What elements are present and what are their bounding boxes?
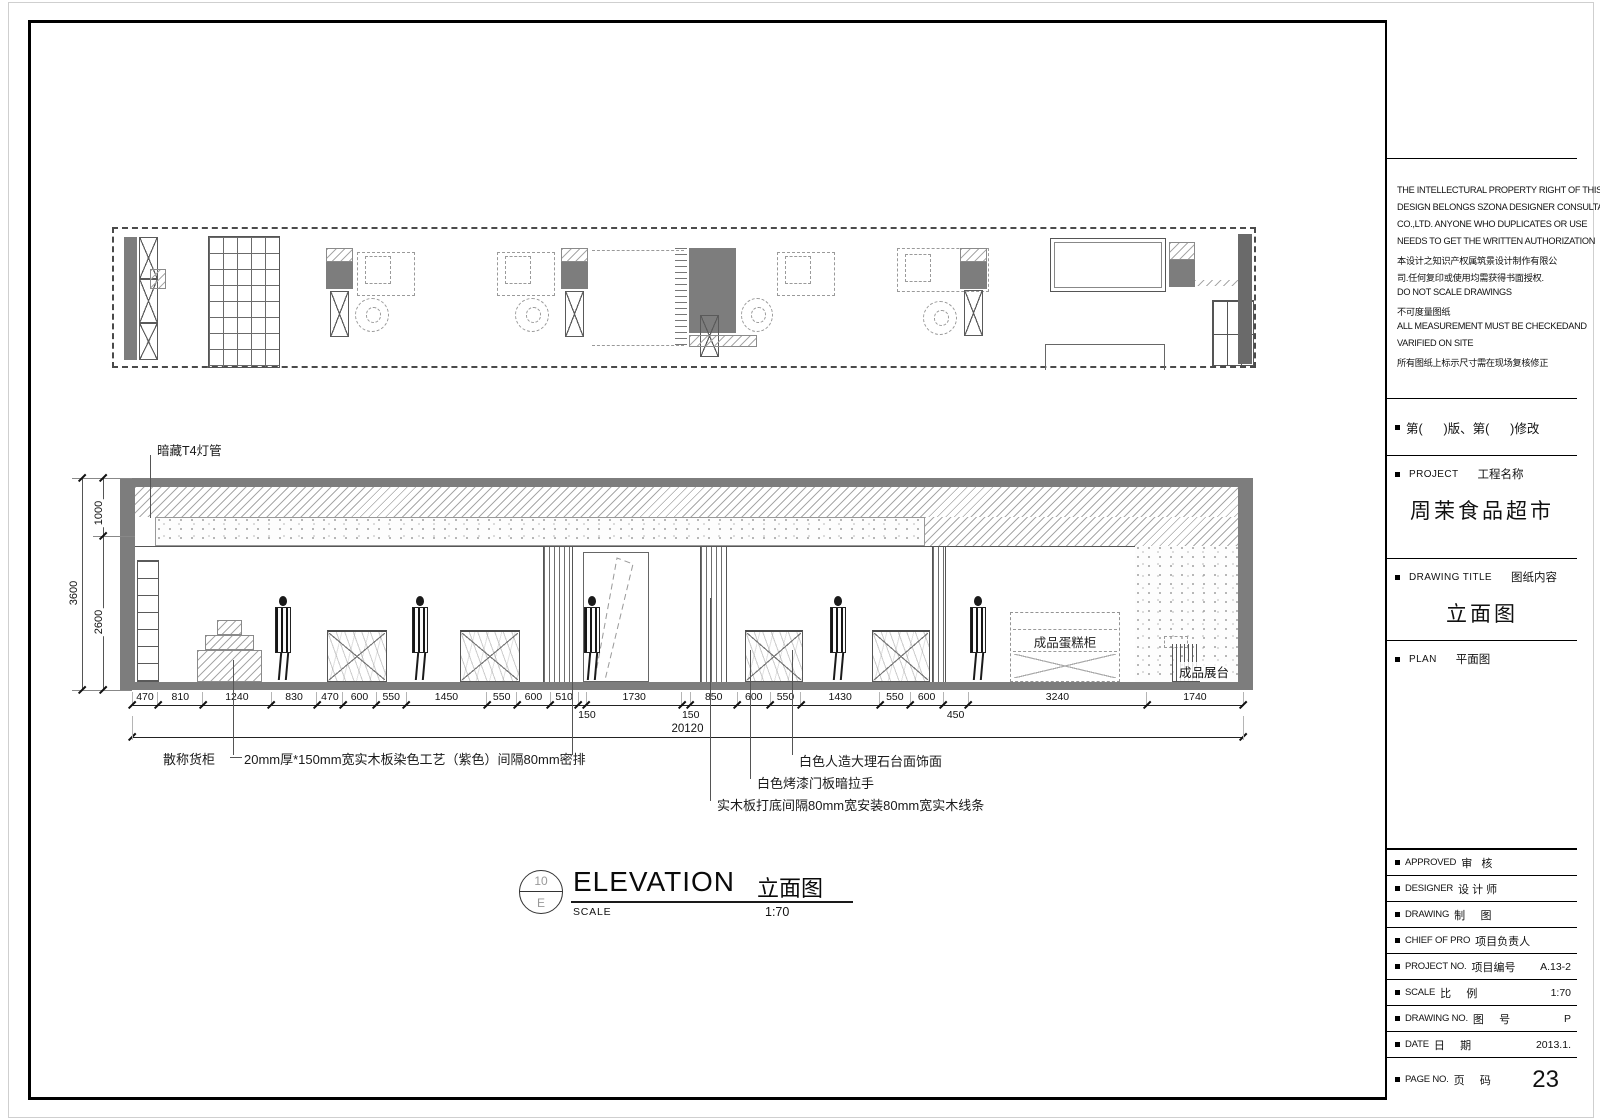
mannequin-legs [972, 653, 983, 680]
bullet-icon [1395, 425, 1400, 430]
titleblock-empty [1387, 20, 1577, 158]
bulkhead-stipple-band [155, 517, 925, 546]
legal-line: VARIFIED ON SITE [1397, 338, 1573, 355]
drawing-title-label-zh: 图纸内容 [1511, 569, 1557, 585]
row-label-zh: 图 号 [1473, 1011, 1559, 1027]
titleblock-row: PAGE NO.页 码23 [1387, 1057, 1577, 1101]
mannequin-body [412, 607, 428, 653]
plan-bottom-counter [1045, 344, 1165, 370]
mannequin-figure [825, 596, 851, 682]
left-wall-bar [120, 487, 135, 682]
plan-person [355, 298, 389, 332]
plan-corridor-line [592, 250, 684, 251]
plan-person [515, 298, 549, 332]
dimension-label: 550 [770, 691, 800, 703]
legal-line: CO.,LTD. ANYONE WHO DUPLICATES OR USE [1397, 219, 1573, 236]
bullet-icon [1395, 1016, 1400, 1021]
plan-hatch-block [150, 269, 166, 289]
caption-scale-label: SCALE [573, 906, 611, 918]
leader-line [233, 660, 234, 755]
revision-row: 第( )版、第( )修改 [1387, 398, 1577, 455]
bullet-icon [1395, 860, 1400, 865]
legal-line: ALL MEASUREMENT MUST BE CHECKEDAND [1397, 321, 1573, 338]
drawing-title-label-en: DRAWING TITLE [1409, 572, 1492, 583]
cabinet-x-brace [874, 633, 928, 680]
bulk-display-pyramid [197, 620, 262, 682]
project-section: PROJECT 工程名称 周茉食品超市 [1387, 455, 1577, 558]
mannequin-legs [414, 653, 425, 680]
dimension-label: 3240 [968, 691, 1147, 703]
cake-cabinet-line [1013, 629, 1117, 630]
dimension-line [82, 478, 83, 690]
bullet-icon [1395, 964, 1400, 969]
plan-xbox [139, 323, 158, 360]
mannequin-figure [270, 596, 296, 682]
label-bulk-cabinet: 散称货柜 [163, 749, 215, 768]
callout-t4-light: 暗藏T4灯管 [157, 440, 222, 459]
row-label-en: CHIEF OF PRO [1405, 935, 1470, 946]
pyramid-step [205, 635, 254, 650]
bubble-number: 10 [520, 871, 562, 892]
wood-slat-panel [543, 547, 573, 682]
dimension-label: 470 [132, 691, 158, 703]
row-label-zh: 页 码 [1454, 1072, 1528, 1088]
titleblock-row: CHIEF OF PRO项目负责人 [1387, 927, 1577, 953]
cabinet-x-brace [462, 633, 518, 680]
legal-text: THE INTELLECTURAL PROPERTY RIGHT OF THIS… [1387, 158, 1577, 398]
ceiling-edge-band [120, 478, 1253, 487]
elevation-caption: 10 E ELEVATION 立面图 SCALE 1:70 [515, 866, 860, 926]
row-value: P [1564, 1013, 1571, 1025]
mannequin-body [970, 607, 986, 653]
row-label-zh: 设 计 师 [1458, 881, 1566, 897]
plan-wall-bar [124, 237, 137, 360]
wood-slat-panel [932, 547, 946, 682]
dimension-total: 20120 [132, 723, 1243, 735]
project-label-en: PROJECT [1409, 469, 1458, 480]
dimension-label: 150 [682, 709, 690, 721]
ceiling-hatch-band-right [925, 517, 1238, 546]
dimension-label: 1740 [1147, 691, 1243, 703]
caption-title-zh: 立面图 [757, 871, 823, 903]
mannequin-body [584, 607, 600, 653]
side-shelf-ladder [137, 560, 159, 682]
plan-hatch-strip [1195, 280, 1241, 286]
titleblock-rows: APPROVED审 核DESIGNER设 计 师DRAWING制 图CHIEF … [1387, 848, 1577, 1100]
row-value: 23 [1532, 1066, 1559, 1094]
row-label-en: SCALE [1405, 987, 1435, 998]
sec-head-element: PLAN 平面图 [1387, 641, 1577, 667]
plan-desk-item [505, 256, 531, 284]
row-label-zh: 项目负责人 [1475, 933, 1566, 949]
pyramid-step [197, 650, 262, 682]
dimension-label: 550 [487, 691, 517, 703]
bullet-icon [1395, 912, 1400, 917]
cabinet-x-brace [329, 633, 385, 680]
display-stand-label: 成品展台 [1178, 662, 1230, 681]
dimension-label: 830 [271, 691, 317, 703]
legal-line: 本设计之知识产权属筑景设计制作有限公 [1397, 253, 1573, 270]
mannequin-body [275, 607, 291, 653]
row-label-en: DESIGNER [1405, 883, 1453, 894]
dimension-line [132, 737, 1243, 738]
marble-cabinet [745, 630, 803, 682]
cake-cabinet-label: 成品蛋糕柜 [1011, 632, 1119, 651]
titleblock-row: SCALE比 例1:70 [1387, 979, 1577, 1005]
caption-rule [571, 901, 853, 903]
vdim-total: 3600 [68, 579, 80, 607]
mannequin-head [279, 596, 287, 606]
dimension-label: 600 [737, 691, 770, 703]
bullet-icon [1395, 990, 1400, 995]
bullet-icon [1395, 657, 1400, 662]
plan-shelf-grid [208, 236, 280, 368]
note-door: 白色烤漆门板暗拉手 [757, 773, 874, 792]
mannequin-head [834, 596, 842, 606]
plan-hatch-block [326, 248, 353, 262]
project-label-zh: 工程名称 [1477, 466, 1523, 482]
mannequin-head [588, 596, 596, 606]
sec-head-element: PROJECT 工程名称 [1387, 456, 1577, 482]
mannequin-figure [579, 596, 605, 682]
bullet-icon [1395, 886, 1400, 891]
mannequin-head [974, 596, 982, 606]
marble-cabinet [460, 630, 520, 682]
caption-title-en: ELEVATION [573, 866, 735, 898]
mannequin-legs [277, 653, 288, 680]
mannequin-body [830, 607, 846, 653]
row-label-en: APPROVED [1405, 857, 1456, 868]
ceiling-line [135, 546, 1238, 547]
project-name: 周茉食品超市 [1387, 495, 1577, 525]
mannequin-figure [965, 596, 991, 682]
legal-line: DESIGN BELONGS SZONA DESIGNER CONSULTANT [1397, 202, 1573, 219]
plan-hatch-block [561, 248, 588, 262]
row-value: 2013.1. [1536, 1039, 1571, 1051]
pyramid-step [217, 620, 242, 635]
leader-line [750, 650, 751, 779]
mannequin-legs [586, 653, 597, 680]
dimension-label: 600 [343, 691, 376, 703]
marble-cabinet [872, 630, 930, 682]
drawing-title: 立面图 [1387, 598, 1577, 628]
mannequin-legs [832, 653, 843, 680]
dimension-label: 450 [943, 709, 968, 721]
bullet-icon [1395, 472, 1400, 477]
bullet-icon [1395, 1042, 1400, 1047]
plan-xbox [565, 291, 584, 337]
bullet-icon [1395, 938, 1400, 943]
leader-line [150, 455, 151, 518]
right-wall-bar [1238, 487, 1253, 682]
sec-head-element: DRAWING TITLE 图纸内容 [1387, 559, 1577, 585]
plan-section: PLAN 平面图 [1387, 640, 1577, 848]
titleblock-row: DRAWING制 图 [1387, 901, 1577, 927]
vdim-lower: 2600 [93, 608, 105, 636]
plan-gray-block [326, 262, 353, 289]
plan-label-en: PLAN [1409, 654, 1437, 665]
row-label-en: PAGE NO. [1405, 1074, 1449, 1085]
leader-line [792, 650, 793, 755]
plan-desk-item [785, 256, 811, 284]
plan-hatch-block [689, 335, 757, 347]
cake-cabinet-line [1013, 651, 1117, 652]
dimension-label: 810 [158, 691, 203, 703]
row-label-en: DRAWING [1405, 909, 1449, 920]
dimension-label: 1240 [203, 691, 271, 703]
row-label-zh: 比 例 [1440, 985, 1545, 1001]
dimension-label: 1430 [801, 691, 880, 703]
note-wood-strip: 实木板打底间隔80mm宽安装80mm宽实木线条 [717, 795, 984, 814]
plan-label-zh: 平面图 [1456, 651, 1491, 667]
plan-person [923, 301, 957, 335]
bullet-icon [1395, 1077, 1400, 1082]
row-label-zh: 审 核 [1461, 855, 1566, 871]
legal-line: NEEDS TO GET THE WRITTEN AUTHORIZATION [1397, 236, 1573, 253]
plan-xbox [964, 290, 983, 336]
note-marble: 白色人造大理石台面饰面 [799, 751, 942, 770]
dimension-label: 550 [880, 691, 910, 703]
dim-chain: 4708101240830470600550145055060051015017… [132, 688, 1243, 758]
plan-dark-bar [1238, 234, 1252, 364]
titleblock-row: DATE日 期2013.1. [1387, 1031, 1577, 1057]
row-label-zh: 项目编号 [1472, 959, 1536, 975]
mannequin-figure [407, 596, 433, 682]
dimension-label: 1450 [406, 691, 486, 703]
dimension-label: 600 [910, 691, 943, 703]
titleblock-row: DRAWING NO.图 号P [1387, 1005, 1577, 1031]
row-label-en: DATE [1405, 1039, 1429, 1050]
title-block: THE INTELLECTURAL PROPERTY RIGHT OF THIS… [1385, 20, 1577, 1100]
bubble-letter: E [520, 892, 562, 913]
revision-text: 第( )版、第( )修改 [1406, 418, 1539, 437]
plan-hatch-block [1169, 242, 1195, 260]
mannequin-head [416, 596, 424, 606]
plan-desk-item [365, 256, 391, 284]
detail-bubble: 10 E [519, 870, 563, 914]
dimension-label: 1730 [586, 691, 682, 703]
elevation-view: 成品蛋糕柜 成品展台 [120, 478, 1253, 690]
leader-line [230, 757, 242, 758]
plan-view [112, 227, 1256, 368]
plan-hatch-block [960, 248, 987, 262]
titleblock-row: PROJECT NO.项目编号A.13-2 [1387, 953, 1577, 979]
dimension-label: 510 [550, 691, 578, 703]
legal-line: 所有图纸上标示尺寸需在现场复核修正 [1397, 355, 1573, 372]
row-label-en: PROJECT NO. [1405, 961, 1467, 972]
dimension-label: 470 [317, 691, 343, 703]
plan-xbox [330, 291, 349, 337]
row-value: A.13-2 [1540, 961, 1571, 973]
dimension-label: 850 [690, 691, 737, 703]
row-value: 1:70 [1551, 987, 1571, 999]
legal-line: DO NOT SCALE DRAWINGS [1397, 287, 1573, 304]
plan-gray-block [1169, 260, 1195, 287]
plan-corridor-line [592, 345, 684, 346]
dimension-label: 550 [376, 691, 406, 703]
cake-cabinet-x [1014, 654, 1116, 678]
ceiling-hatch-band [135, 487, 1238, 517]
plan-gray-block [960, 262, 987, 289]
vdim-upper: 1000 [93, 499, 105, 527]
titleblock-row: DESIGNER设 计 师 [1387, 875, 1577, 901]
row-label-en: DRAWING NO. [1405, 1013, 1468, 1024]
wood-slat-panel [700, 547, 727, 682]
legal-line: THE INTELLECTURAL PROPERTY RIGHT OF THIS [1397, 185, 1573, 202]
note-wood-panel: 20mm厚*150mm宽实木板染色工艺（紫色）间隔80mm密排 [244, 749, 586, 768]
dimension-label: 150 [578, 709, 586, 721]
plan-person [741, 298, 773, 332]
row-label-zh: 日 期 [1434, 1037, 1531, 1053]
marble-cabinet [327, 630, 387, 682]
plan-gray-block [561, 262, 588, 289]
row-label-zh: 制 图 [1454, 907, 1566, 923]
bullet-icon [1395, 575, 1400, 580]
titleblock-row: APPROVED审 核 [1387, 849, 1577, 875]
plan-counter [1050, 238, 1166, 292]
leader-line [710, 598, 711, 801]
cake-cabinet: 成品蛋糕柜 [1010, 612, 1120, 682]
caption-scale-value: 1:70 [765, 905, 789, 919]
drawing-title-section: DRAWING TITLE 图纸内容 立面图 [1387, 558, 1577, 640]
legal-line: 司.任何复印或使用均需获得书面授权. [1397, 270, 1573, 287]
plan-comb-strip [675, 248, 687, 349]
legal-line: 不可度量图纸 [1397, 304, 1573, 321]
plan-desk-item [905, 254, 931, 282]
drawing-sheet: 成品蛋糕柜 成品展台 3600 1000 2600 47081012408304… [0, 0, 1600, 1120]
leader-line [572, 640, 573, 755]
dimension-label: 600 [517, 691, 550, 703]
